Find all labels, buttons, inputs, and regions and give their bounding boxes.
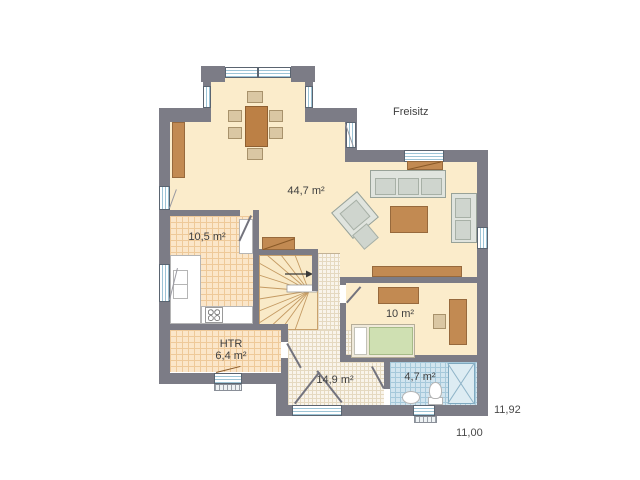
- wall-bedroom-left-lower: [340, 303, 346, 362]
- dining-chair-left-1: [228, 110, 242, 122]
- dimension-lower: 11,00: [456, 427, 483, 439]
- wall-htr-right-upper: [281, 330, 288, 342]
- wall-bedroom-top: [340, 277, 477, 283]
- wall-exterior-left: [159, 108, 170, 384]
- wall-htr-right-lower: [281, 358, 288, 373]
- dining-chair-top: [247, 91, 263, 103]
- desk: [449, 299, 467, 345]
- wardrobe: [378, 287, 419, 304]
- window-kitchen: [159, 264, 170, 302]
- wall-kitchen-right: [253, 210, 259, 330]
- window-htr: [214, 373, 242, 384]
- dimension-upper: 11,92: [494, 404, 521, 416]
- bed-blanket: [369, 327, 413, 355]
- sideboard-living: [372, 266, 462, 277]
- wall-bath-left: [384, 362, 390, 389]
- wall-bedroom-left-upper: [340, 277, 346, 285]
- bed-pillow: [354, 327, 367, 355]
- label-bath-area: 4,7 m²: [404, 371, 435, 383]
- dining-table: [245, 106, 268, 147]
- tall-cabinet: [172, 122, 185, 178]
- toilet-bowl: [429, 382, 442, 399]
- washbasin: [402, 391, 420, 404]
- dining-chair-right-1: [269, 110, 283, 122]
- floor-boundary-corridor-top: [318, 253, 340, 254]
- label-htr-area: 6,4 m²: [215, 350, 246, 362]
- wall-htr-top: [159, 324, 288, 330]
- window-bath: [413, 405, 435, 416]
- floor-corridor-tiles: [318, 253, 340, 330]
- window-bay-left: [203, 86, 211, 108]
- window-bay-right: [305, 86, 313, 108]
- sofa-cushion: [455, 220, 471, 240]
- light-well-grate-bath: [414, 416, 437, 423]
- label-living-area: 44,7 m²: [287, 185, 324, 197]
- label-bedroom-area: 10 m²: [386, 308, 414, 320]
- wall-stairs-right: [312, 255, 318, 291]
- label-freisitz: Freisitz: [393, 106, 428, 118]
- staircase: [259, 255, 318, 330]
- entrance-door-glazing: [292, 405, 342, 416]
- label-kitchen-area: 10,5 m²: [188, 231, 225, 243]
- cooktop: [205, 307, 223, 323]
- light-well-grate-htr: [214, 384, 242, 391]
- label-htr-name: HTR: [220, 338, 243, 350]
- desk-chair: [433, 314, 446, 329]
- window-bay-top-mullion: [257, 67, 259, 78]
- kitchen-sink-divider: [174, 284, 187, 285]
- wall-kitchen-top: [170, 210, 240, 216]
- window-living-right: [477, 227, 488, 249]
- dining-chair-bottom: [247, 148, 263, 160]
- staircase-treads: [259, 255, 318, 330]
- coffee-table: [390, 206, 428, 233]
- wall-exterior-right: [477, 150, 488, 416]
- sofa-cushion: [375, 178, 396, 195]
- sofa-cushion: [455, 198, 471, 218]
- dining-chair-right-2: [269, 127, 283, 139]
- label-hall-area: 14,9 m²: [316, 374, 353, 386]
- sofa-cushion: [421, 178, 442, 195]
- dining-chair-left-2: [228, 127, 242, 139]
- staircase-direction-arrow: [285, 271, 313, 278]
- sofa-cushion: [398, 178, 419, 195]
- sofa-three-seat: [370, 170, 446, 198]
- sofa-two-seat: [451, 193, 477, 243]
- floor-plan: Freisitz 44,7 m² 10,5 m² 10 m² HTR 6,4 m…: [0, 0, 640, 480]
- bed: [351, 324, 415, 358]
